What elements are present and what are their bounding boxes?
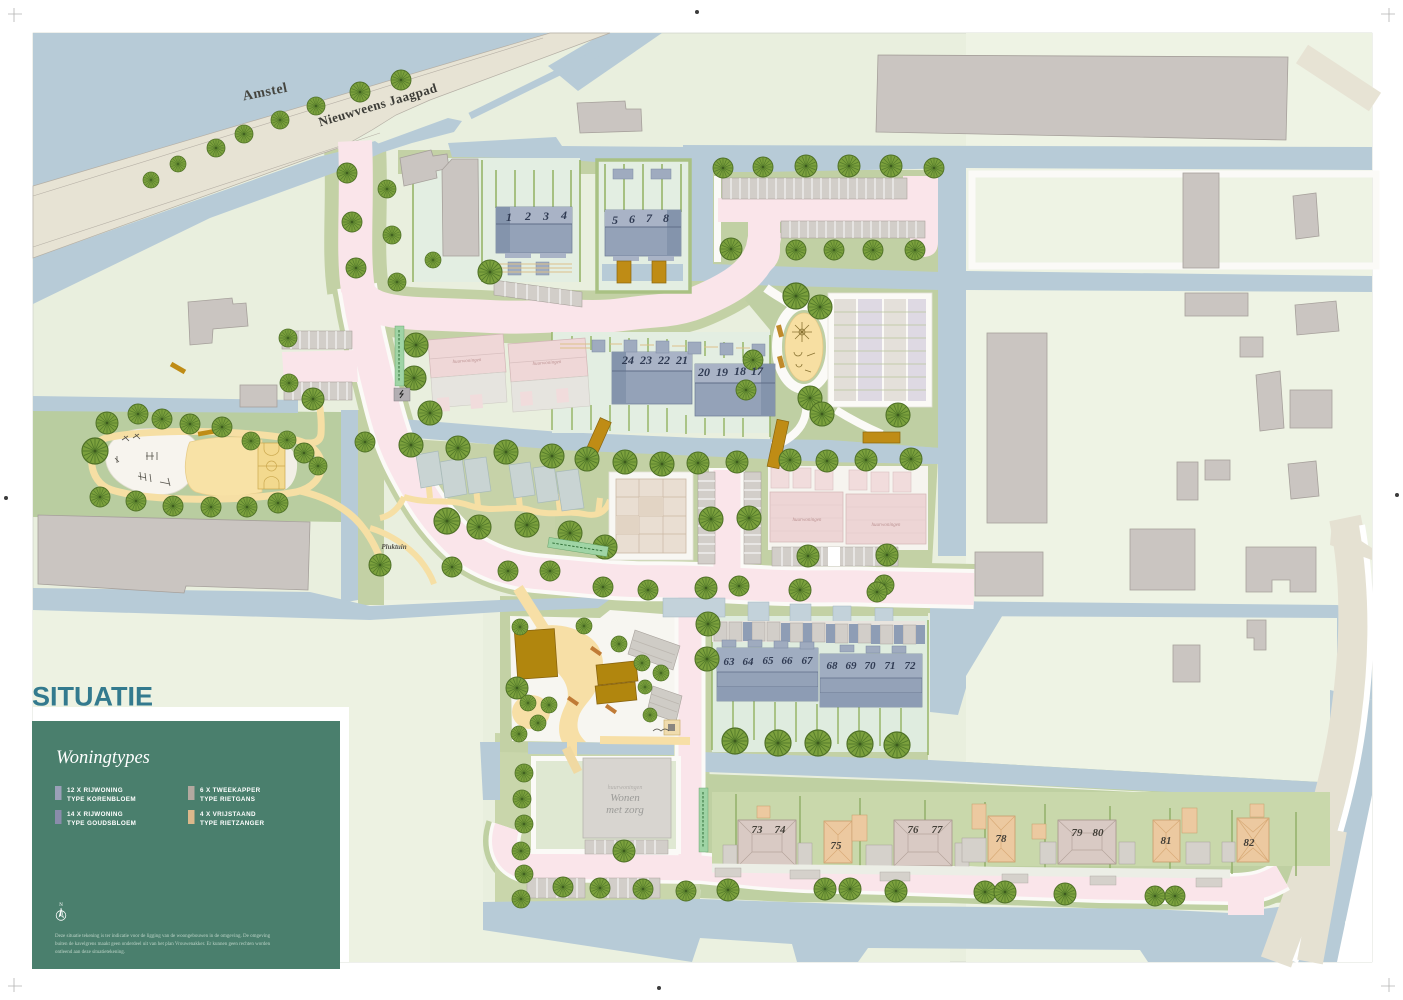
- svg-text:24: 24: [621, 353, 634, 367]
- svg-text:huurwoningen: huurwoningen: [608, 785, 643, 791]
- svg-text:TYPE GOUDSBLOEM: TYPE GOUDSBLOEM: [67, 820, 136, 827]
- svg-text:TYPE RIETGANS: TYPE RIETGANS: [200, 796, 255, 803]
- svg-text:79: 79: [1072, 827, 1084, 839]
- svg-text:7: 7: [646, 211, 653, 225]
- svg-text:met zorg: met zorg: [606, 804, 644, 816]
- svg-text:22: 22: [657, 353, 670, 367]
- svg-text:ontleend aan deze situatieteke: ontleend aan deze situatietekening.: [55, 950, 125, 955]
- svg-text:Wonen: Wonen: [610, 792, 640, 804]
- svg-text:8: 8: [663, 211, 669, 225]
- svg-text:74: 74: [775, 824, 787, 836]
- svg-text:72: 72: [905, 660, 917, 672]
- svg-text:huurwoningen: huurwoningen: [793, 518, 822, 523]
- svg-text:14 X RIJWONING: 14 X RIJWONING: [67, 811, 123, 818]
- svg-text:64: 64: [743, 656, 755, 668]
- svg-text:4: 4: [560, 208, 567, 222]
- svg-text:12 X RIJWONING: 12 X RIJWONING: [67, 787, 123, 794]
- svg-text:17: 17: [751, 364, 764, 378]
- svg-text:21: 21: [675, 353, 688, 367]
- svg-text:TYPE RIETZANGER: TYPE RIETZANGER: [200, 820, 264, 827]
- svg-text:3: 3: [542, 209, 549, 223]
- svg-text:18: 18: [734, 364, 746, 378]
- svg-text:78: 78: [996, 833, 1008, 845]
- svg-text:SITUATIE: SITUATIE: [32, 682, 153, 712]
- svg-text:4 X VRIJSTAAND: 4 X VRIJSTAAND: [200, 811, 256, 818]
- svg-text:66: 66: [782, 655, 794, 667]
- svg-text:63: 63: [724, 656, 736, 668]
- svg-text:Deze situatie tekening is ter: Deze situatie tekening is ter indicatie …: [55, 934, 271, 939]
- svg-text:6: 6: [629, 212, 635, 226]
- svg-text:5: 5: [612, 213, 618, 227]
- svg-text:Pluktuin: Pluktuin: [381, 543, 406, 551]
- svg-text:71: 71: [885, 660, 896, 672]
- svg-text:82: 82: [1244, 837, 1256, 849]
- svg-text:6 X TWEEKAPPER: 6 X TWEEKAPPER: [200, 787, 261, 794]
- svg-text:N: N: [59, 903, 63, 908]
- svg-text:76: 76: [908, 824, 920, 836]
- svg-text:19: 19: [716, 365, 728, 379]
- svg-text:20: 20: [697, 365, 710, 379]
- svg-text:77: 77: [932, 824, 944, 836]
- svg-text:huurwoningen: huurwoningen: [872, 523, 901, 528]
- svg-text:buiten de kavelgrens maakt gee: buiten de kavelgrens maakt geen onderdee…: [55, 942, 271, 947]
- svg-text:81: 81: [1161, 835, 1172, 847]
- svg-text:65: 65: [763, 655, 775, 667]
- svg-text:68: 68: [827, 660, 839, 672]
- svg-text:80: 80: [1093, 827, 1105, 839]
- svg-text:75: 75: [831, 840, 843, 852]
- svg-text:Woningtypes: Woningtypes: [56, 748, 150, 768]
- svg-text:67: 67: [802, 655, 814, 667]
- svg-text:TYPE KORENBLOEM: TYPE KORENBLOEM: [67, 796, 136, 803]
- svg-text:2: 2: [524, 209, 531, 223]
- svg-text:69: 69: [846, 660, 858, 672]
- svg-text:73: 73: [752, 824, 764, 836]
- svg-text:70: 70: [865, 660, 877, 672]
- svg-text:23: 23: [639, 353, 652, 367]
- svg-text:1: 1: [506, 210, 512, 224]
